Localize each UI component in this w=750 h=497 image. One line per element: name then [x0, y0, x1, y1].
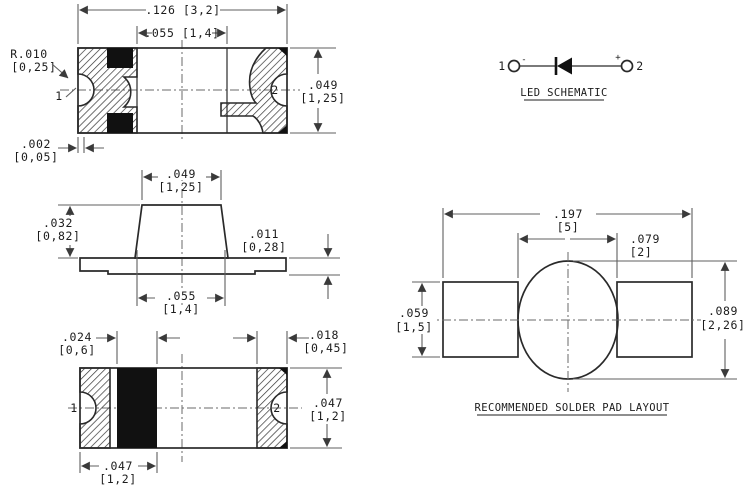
pin1-label: 1: [70, 401, 78, 415]
dim-package-height: .047 [1,2]: [290, 368, 350, 448]
dim-pad-height: .059 [1,5]: [395, 282, 440, 357]
dim-dome-width-in: .049: [166, 167, 196, 181]
dim-base-inner-width: .055 [1,4]: [137, 250, 225, 316]
terminal1-circle: [509, 61, 520, 72]
dim-package-height-in: .047: [313, 396, 343, 410]
dim-terminal-width: .018 [0,45]: [233, 328, 349, 364]
dim-left-section-width-in: .047: [103, 459, 133, 473]
pin1-label: 1: [55, 89, 63, 103]
side-view: .049 [1,25] .032 [0,82] .011 [0,28]: [35, 167, 340, 316]
led-schematic: 1 - + 2 LED SCHEMATIC: [498, 53, 644, 100]
dim-circle-height-mm: [2,26]: [700, 318, 745, 332]
dim-pad-height-mm: [1,5]: [395, 320, 433, 334]
dim-cathode-band: .024 [0,6]: [58, 330, 180, 364]
engineering-drawing: .126 [3,2] .055 [1,4] .049 [1,25] .002: [0, 0, 750, 497]
cathode-band: [117, 368, 157, 448]
pin2-label: 2: [273, 401, 281, 415]
dim-terminal-offset: .002 [0,05]: [13, 137, 104, 164]
minus-sign: -: [521, 55, 526, 65]
dim-notch-radius-in: R.010: [10, 47, 48, 61]
dim-dome-height: .032 [0,82]: [35, 205, 140, 258]
dim-cathode-band-in: .024: [62, 330, 92, 344]
dim-pad-gap-in: .079: [630, 232, 660, 246]
schematic-pin2-label: 2: [636, 59, 644, 73]
pin2-label: 2: [271, 83, 279, 97]
dim-terminal-offset-in: .002: [21, 137, 51, 151]
dim-pad-height-in: .059: [399, 306, 429, 320]
dim-pad-overall-mm: [5]: [557, 220, 580, 234]
dim-terminal-width-mm: [0,45]: [303, 341, 348, 355]
cathode-mark-top: [107, 48, 133, 68]
base-plate: [80, 258, 286, 274]
pin1-leader: [66, 88, 76, 97]
bottom-view: .024 [0,6] .018 [0,45] .047 [1,2]: [58, 328, 350, 486]
schematic-title: LED SCHEMATIC: [520, 87, 607, 99]
dim-cathode-band-mm: [0,6]: [58, 343, 96, 357]
top-view: .126 [3,2] .055 [1,4] .049 [1,25] .002: [10, 3, 346, 164]
dim-notch-radius: R.010 [0,25]: [10, 47, 68, 78]
dim-circle-height-in: .089: [708, 304, 738, 318]
dim-pad-gap-mm: [2]: [630, 245, 653, 259]
schematic-pin1-label: 1: [498, 59, 506, 73]
dim-package-height-mm: [1,2]: [309, 409, 347, 423]
dim-dome-width-mm: [1,25]: [158, 180, 203, 194]
dim-dome-height-mm: [0,82]: [35, 229, 80, 243]
dim-dome-height-in: .032: [43, 216, 73, 230]
cathode-mark-bottom: [107, 113, 133, 133]
dim-package-height-mm: [1,25]: [300, 91, 345, 105]
solder-pad-layout: .197 [5] .079 [2] .059 [1,5]: [395, 206, 748, 415]
drawing-canvas: .126 [3,2] .055 [1,4] .049 [1,25] .002: [0, 0, 750, 497]
dim-overall-width-label: .126 [3,2]: [145, 3, 220, 17]
terminal2-circle: [622, 61, 633, 72]
pad-layout-title: RECOMMENDED SOLDER PAD LAYOUT: [475, 402, 670, 414]
dim-base-thickness-in: .011: [249, 227, 279, 241]
dim-package-height-in: .049: [308, 78, 338, 92]
left-terminal-hatch: [80, 368, 110, 448]
dim-terminal-offset-mm: [0,05]: [13, 150, 58, 164]
diode-triangle: [557, 58, 572, 75]
dim-pad-overall-in: .197: [553, 207, 583, 221]
dim-left-section-width: .047 [1,2]: [80, 452, 157, 486]
dim-base-inner-width-mm: [1,4]: [162, 302, 200, 316]
dim-notch-radius-mm: [0,25]: [11, 60, 56, 74]
dim-base-thickness: .011 [0,28]: [241, 227, 340, 299]
dim-left-section-width-mm: [1,2]: [99, 472, 137, 486]
dim-base-thickness-mm: [0,28]: [241, 240, 286, 254]
dim-terminal-width-in: .018: [309, 328, 339, 342]
dim-inner-width-label: .055 [1,4]: [144, 26, 219, 40]
dim-base-inner-width-in: .055: [166, 289, 196, 303]
plus-sign: +: [615, 53, 621, 63]
